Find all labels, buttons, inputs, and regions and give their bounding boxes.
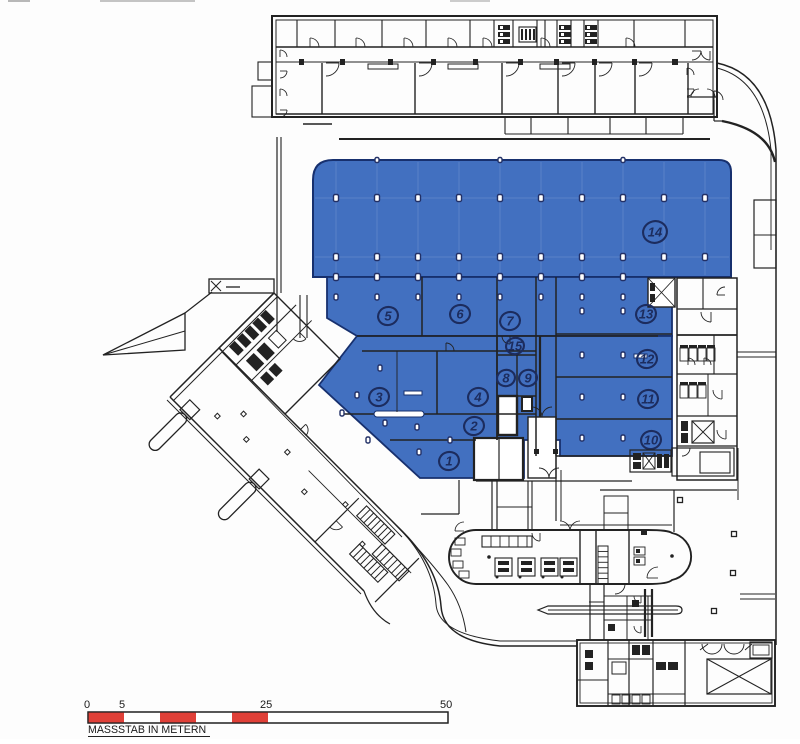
svg-text:5: 5 (384, 309, 392, 324)
svg-text:50: 50 (440, 699, 452, 711)
svg-text:5: 5 (119, 699, 125, 711)
svg-text:13: 13 (639, 307, 654, 322)
svg-text:11: 11 (641, 392, 655, 407)
svg-text:1: 1 (445, 454, 452, 469)
svg-text:8: 8 (502, 371, 510, 386)
svg-text:0: 0 (84, 699, 90, 711)
svg-text:12: 12 (640, 352, 655, 367)
svg-text:MASSSTAB IN METERN: MASSSTAB IN METERN (88, 724, 206, 736)
svg-text:9: 9 (524, 371, 532, 386)
svg-text:14: 14 (648, 225, 663, 240)
svg-text:15: 15 (508, 339, 523, 354)
svg-text:25: 25 (260, 699, 272, 711)
svg-text:4: 4 (473, 390, 482, 405)
svg-text:3: 3 (375, 390, 383, 405)
svg-text:10: 10 (644, 433, 659, 448)
svg-text:2: 2 (469, 419, 478, 434)
svg-text:7: 7 (506, 314, 514, 329)
svg-text:6: 6 (456, 307, 464, 322)
